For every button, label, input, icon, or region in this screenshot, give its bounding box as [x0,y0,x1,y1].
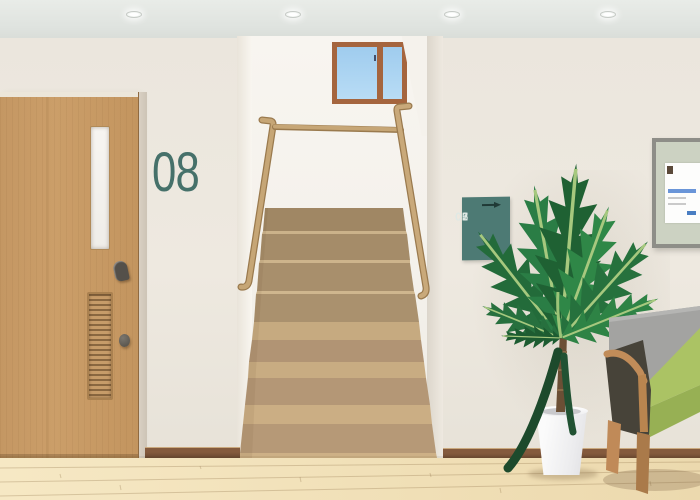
door-lintel [0,92,138,97]
bench[interactable] [600,300,700,500]
ceiling-light-icon [444,11,460,18]
door-handle[interactable] [112,260,130,282]
stair-steps[interactable] [240,208,437,458]
door-jamb [138,92,147,458]
ceiling-light-icon [126,11,142,18]
door-groove [46,95,48,458]
door-lock[interactable] [119,334,130,347]
door-panel[interactable] [0,95,138,458]
door-number-label: 08 [152,139,214,204]
door-glass-slit [90,126,110,250]
bench-front-leg [606,420,621,474]
hallway-scene: 08 02 01 05 03 07 06 [0,0,700,500]
door-vent-grille [87,292,113,400]
ceiling-light-icon [285,11,301,18]
staircase[interactable] [230,30,450,460]
door-08[interactable] [0,95,147,458]
bench-rear-leg [636,432,650,494]
ceiling-light-icon [600,11,616,18]
